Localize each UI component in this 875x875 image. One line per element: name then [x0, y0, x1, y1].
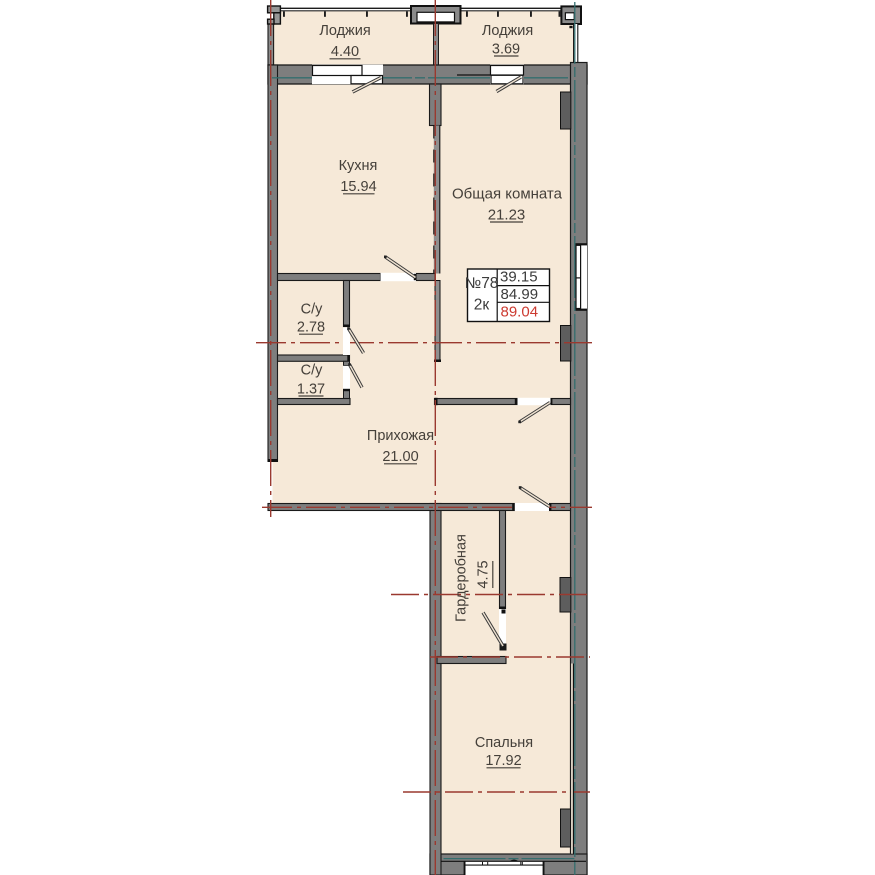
svg-text:Лоджия: Лоджия — [319, 23, 370, 39]
svg-text:2.78: 2.78 — [297, 320, 325, 336]
svg-text:1.37: 1.37 — [297, 382, 325, 398]
svg-text:Гардеробная: Гардеробная — [454, 534, 470, 622]
svg-text:15.94: 15.94 — [340, 179, 376, 195]
svg-text:4.40: 4.40 — [331, 44, 359, 60]
svg-text:Кухня: Кухня — [339, 158, 378, 174]
svg-text:Лоджия: Лоджия — [482, 23, 533, 39]
svg-text:17.92: 17.92 — [485, 753, 521, 769]
svg-text:3.69: 3.69 — [492, 42, 520, 58]
svg-text:21.23: 21.23 — [488, 207, 526, 224]
svg-text:Спальня: Спальня — [475, 735, 533, 751]
svg-text:4.75: 4.75 — [476, 560, 492, 588]
svg-text:21.00: 21.00 — [382, 449, 418, 465]
svg-text:2к: 2к — [474, 297, 490, 314]
svg-text:89.04: 89.04 — [501, 304, 539, 321]
svg-text:С/у: С/у — [301, 302, 324, 318]
svg-text:39.15: 39.15 — [500, 269, 538, 286]
svg-text:84.99: 84.99 — [501, 286, 539, 303]
svg-text:С/у: С/у — [301, 363, 324, 379]
svg-text:Прихожая: Прихожая — [367, 428, 434, 444]
svg-text:№78: №78 — [465, 275, 499, 292]
svg-text:Общая комната: Общая комната — [452, 186, 563, 203]
